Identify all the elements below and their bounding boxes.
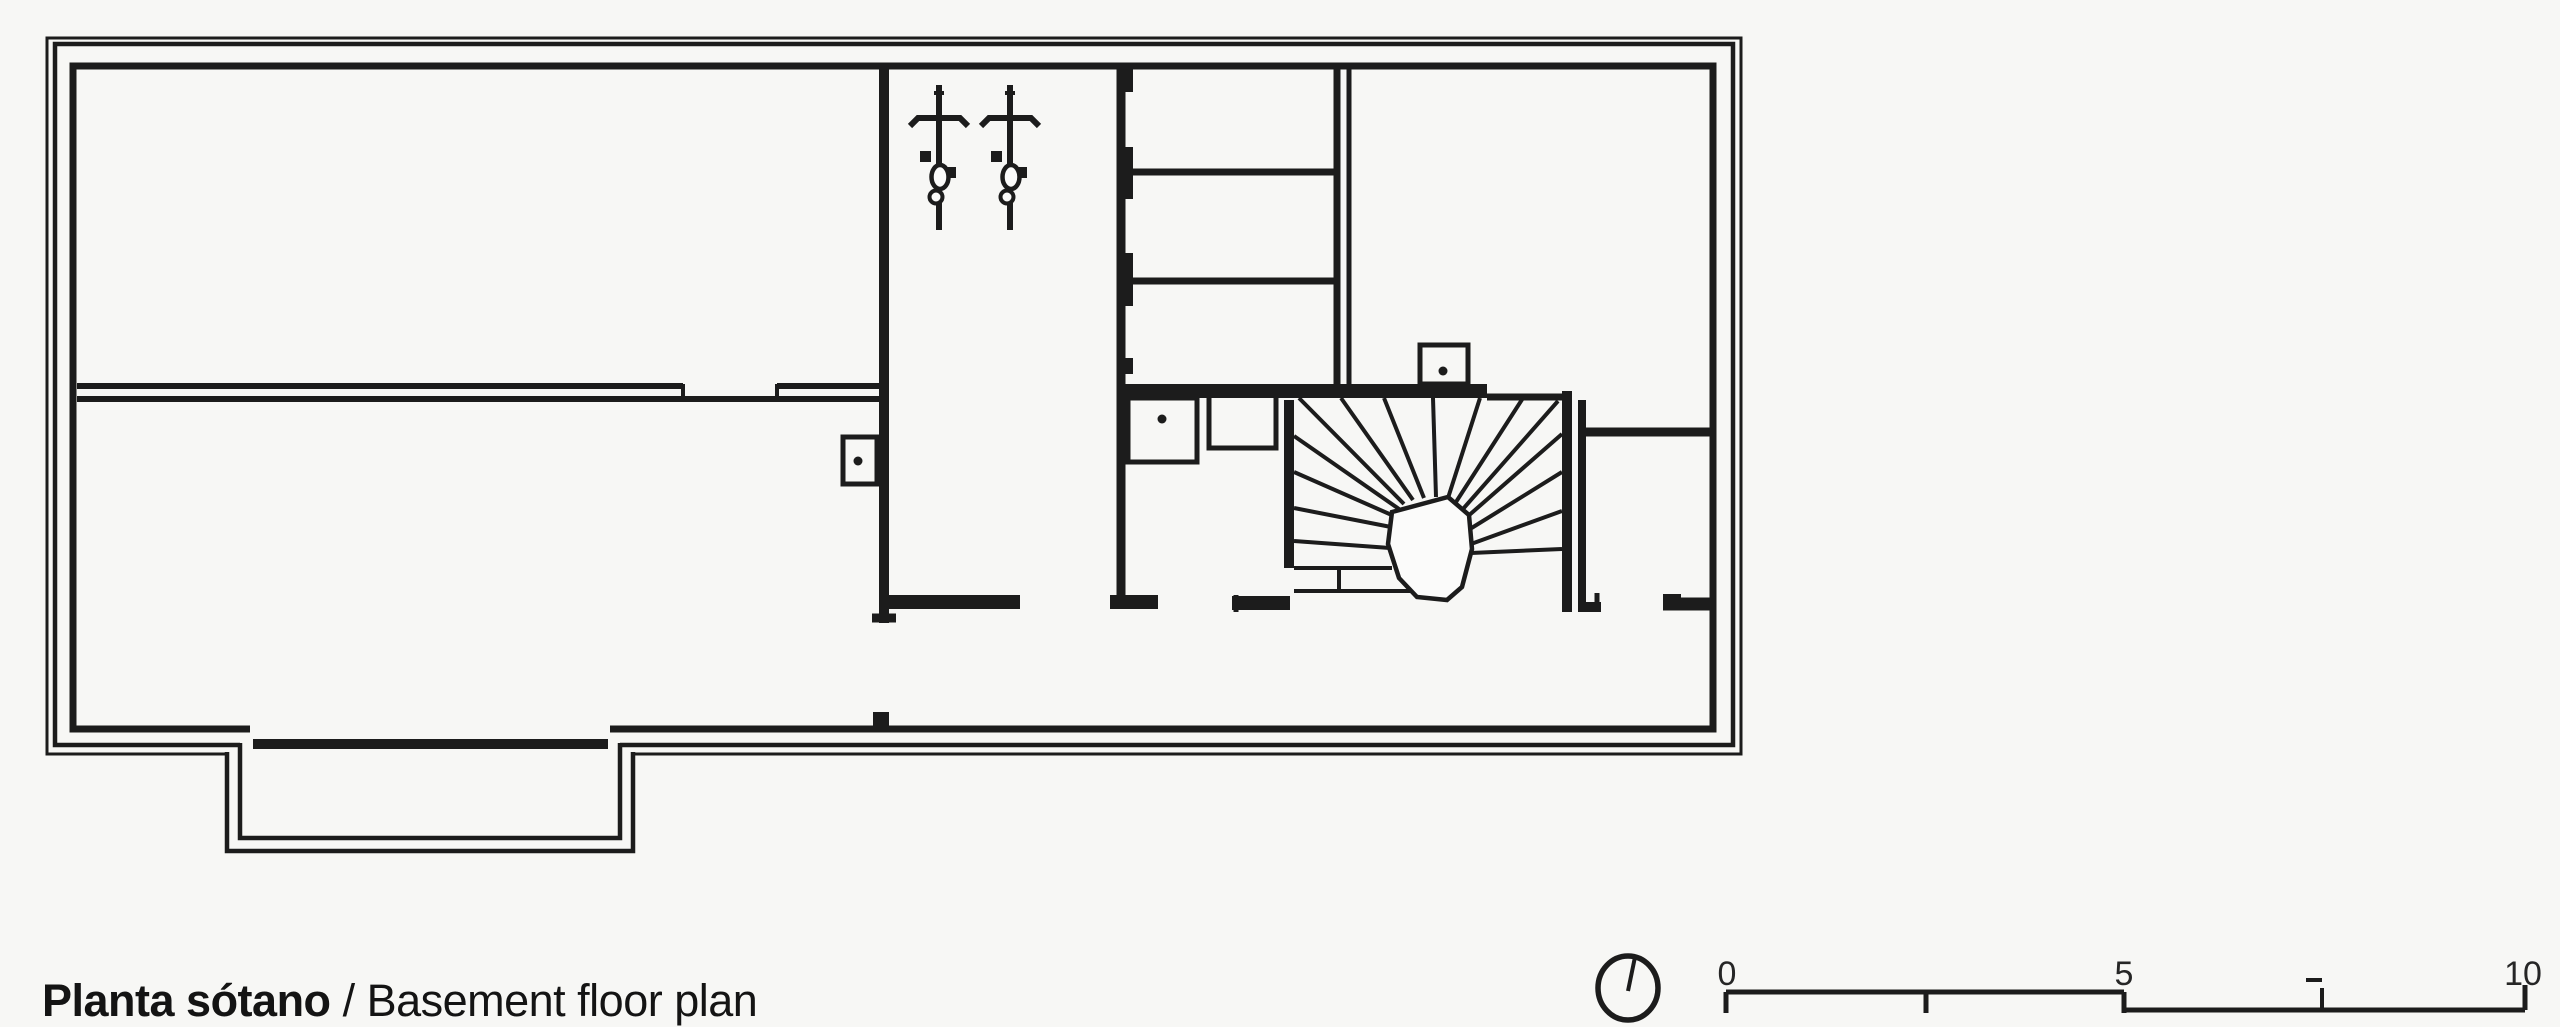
floor-plan xyxy=(47,38,1741,851)
caption-primary: Planta sótano xyxy=(42,975,343,1026)
scale-bar: 0 5 10 xyxy=(1718,955,2542,1013)
column-box-2 xyxy=(1128,398,1197,462)
north-indicator-icon xyxy=(1598,956,1658,1020)
column-box-2-dot xyxy=(1158,415,1167,424)
scale-label-5: 5 xyxy=(2115,955,2134,993)
sheet: Planta sótano / Basement floor plan 0 5 … xyxy=(0,0,2560,1027)
stair-newel-core xyxy=(1388,497,1472,600)
caption-secondary: / Basement floor plan xyxy=(343,975,758,1026)
column-box-3-dot xyxy=(1439,367,1448,376)
shelf-support-tab-4 xyxy=(1123,358,1133,374)
bottom-wall-door-jamb xyxy=(873,712,889,728)
column-boxes xyxy=(843,345,1468,484)
bicycle-icons xyxy=(910,85,1039,230)
column-box-3 xyxy=(1420,345,1468,384)
storage-shelves xyxy=(1123,68,1337,374)
lightwell-inner-wall xyxy=(240,743,620,838)
scale-label-0: 0 xyxy=(1718,955,1737,993)
north-needle xyxy=(1628,957,1635,991)
shelf-support-tab-3 xyxy=(1123,253,1133,306)
bicycle-icon-1 xyxy=(910,85,968,230)
bicycle-icon-2 xyxy=(981,85,1039,230)
fan-stair-icon xyxy=(1294,398,1562,600)
shelf-support-tab-2 xyxy=(1123,147,1133,199)
scale-label-10: 10 xyxy=(2504,955,2542,993)
shelf-support-tab-1 xyxy=(1123,68,1133,92)
column-box-1-dot xyxy=(854,457,863,466)
drawing-caption: Planta sótano / Basement floor plan xyxy=(42,975,757,1026)
service-shaft xyxy=(1209,391,1276,448)
lightwell xyxy=(227,743,633,851)
interior-walls xyxy=(77,66,1710,728)
floor-plan-drawing: Planta sótano / Basement floor plan 0 5 … xyxy=(0,0,2560,1027)
